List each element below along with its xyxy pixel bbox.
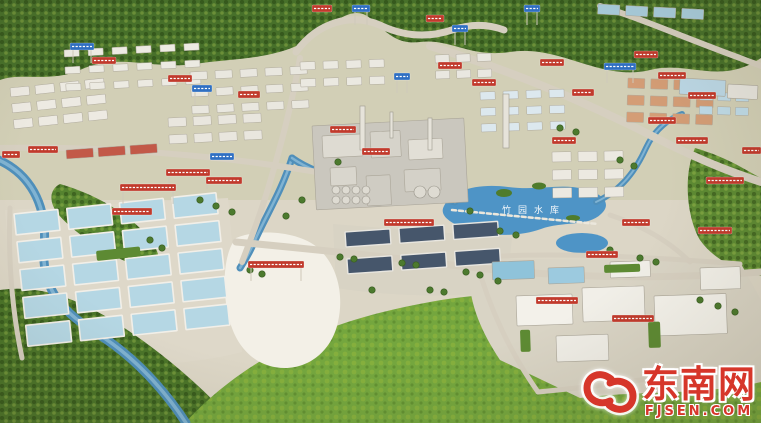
building: [181, 276, 227, 301]
tree: [197, 197, 203, 203]
building: [23, 293, 69, 318]
red-banner-sign: [622, 219, 650, 226]
building: [265, 67, 282, 76]
building: [168, 117, 186, 127]
red-banner-sign: [384, 219, 434, 226]
building: [681, 8, 703, 19]
chimney: [390, 112, 393, 138]
terrain-island: [496, 189, 512, 197]
building: [481, 107, 496, 116]
building: [370, 76, 385, 85]
tree: [427, 287, 433, 293]
building: [128, 282, 174, 307]
building: [628, 78, 645, 89]
building: [98, 146, 126, 157]
building: [130, 144, 158, 155]
building: [369, 59, 384, 68]
building: [604, 169, 623, 179]
red-banner-sign: [168, 75, 192, 82]
building: [131, 310, 177, 335]
reservoir-label: 竹园水库: [502, 204, 566, 216]
chimney: [428, 118, 432, 150]
building: [324, 78, 339, 87]
building: [215, 70, 232, 79]
building: [218, 114, 236, 124]
red-banner-sign: [330, 126, 356, 133]
building: [75, 287, 121, 312]
storage-tank: [428, 186, 440, 198]
building: [65, 66, 80, 74]
tree: [213, 203, 219, 209]
building: [435, 55, 449, 63]
tree: [399, 260, 405, 266]
red-banner-sign: [688, 92, 716, 99]
building: [550, 105, 565, 114]
building: [346, 60, 361, 69]
building: [216, 87, 233, 96]
building: [527, 122, 542, 131]
storage-tank: [342, 186, 350, 194]
red-banner-sign: [92, 57, 116, 64]
red-banner-sign: [698, 227, 732, 234]
building: [38, 115, 58, 126]
chimney: [503, 94, 509, 148]
storage-tank: [414, 186, 426, 198]
hedge: [520, 330, 531, 352]
tree: [413, 262, 419, 268]
tree: [495, 278, 501, 284]
building: [654, 293, 727, 335]
building: [717, 107, 730, 115]
building: [399, 225, 445, 243]
building: [66, 148, 94, 159]
building: [625, 5, 647, 16]
building: [477, 53, 491, 61]
building: [113, 64, 128, 72]
building: [67, 204, 113, 229]
building: [408, 138, 443, 160]
tree: [337, 254, 343, 260]
building: [401, 252, 447, 270]
building: [457, 70, 471, 78]
storage-tank: [362, 186, 370, 194]
red-banner-sign: [438, 62, 462, 69]
building: [136, 45, 151, 53]
red-banner-sign: [112, 208, 152, 215]
tree: [299, 197, 305, 203]
fjsen-logo-icon: [580, 364, 640, 420]
red-banner-sign: [536, 297, 578, 304]
building: [114, 81, 129, 89]
red-banner-sign: [2, 151, 20, 158]
red-banner-sign: [658, 72, 686, 79]
tree: [463, 269, 469, 275]
building: [695, 114, 712, 125]
building: [556, 334, 609, 362]
building: [61, 97, 81, 108]
tree: [229, 209, 235, 215]
tree: [283, 213, 289, 219]
terrain-small-pond: [556, 233, 608, 253]
red-banner-sign: [648, 117, 676, 124]
red-banner-sign: [28, 146, 58, 153]
building: [73, 260, 119, 285]
building: [700, 267, 741, 290]
building: [217, 104, 234, 113]
building: [699, 106, 712, 114]
building: [160, 44, 175, 52]
building: [37, 99, 57, 110]
building: [627, 95, 644, 106]
red-banner-sign: [206, 177, 242, 184]
watermark-text: 东南网 FJSEN.COM: [642, 366, 756, 419]
building: [605, 187, 624, 197]
building: [125, 254, 171, 279]
building: [345, 229, 391, 247]
storage-tank: [352, 196, 360, 204]
tree: [513, 232, 519, 238]
building: [347, 77, 362, 86]
building: [219, 131, 237, 141]
building: [243, 113, 261, 123]
tree: [715, 303, 721, 309]
tree: [653, 259, 659, 265]
tree: [573, 129, 579, 135]
blue-road-sign: [210, 153, 234, 160]
building: [453, 221, 499, 239]
tree: [147, 237, 153, 243]
tree: [557, 125, 563, 131]
building: [14, 209, 60, 234]
tree: [351, 256, 357, 262]
building-cluster: [552, 151, 624, 198]
building: [578, 151, 597, 161]
red-banner-sign: [540, 59, 564, 66]
building: [63, 113, 83, 124]
red-banner-sign: [586, 251, 618, 258]
building: [194, 133, 212, 143]
building: [548, 267, 585, 284]
building: [10, 86, 30, 97]
tree: [697, 297, 703, 303]
building: [17, 237, 63, 262]
building: [169, 134, 187, 144]
tree: [732, 309, 738, 315]
building: [86, 94, 106, 105]
tree: [369, 287, 375, 293]
building: [172, 193, 218, 218]
tree: [335, 159, 341, 165]
storage-tank: [342, 196, 350, 204]
building: [292, 100, 309, 109]
building: [481, 123, 496, 132]
building: [552, 152, 571, 162]
building: [242, 102, 259, 111]
red-banner-sign: [238, 91, 260, 98]
building: [175, 221, 221, 246]
tree: [467, 208, 473, 214]
building: [112, 47, 127, 55]
storage-tank: [332, 186, 340, 194]
label-layer: 竹园水库: [502, 204, 566, 216]
building: [478, 69, 492, 77]
building: [267, 101, 284, 110]
building: [300, 61, 315, 70]
red-banner-sign: [552, 137, 576, 144]
watermark-site-name: 东南网: [642, 366, 756, 403]
building: [527, 106, 542, 115]
red-banner-sign: [362, 148, 390, 155]
red-banner-sign: [676, 137, 708, 144]
storage-tank: [332, 196, 340, 204]
tree: [497, 228, 503, 234]
building: [178, 248, 224, 273]
red-banner-sign: [634, 51, 658, 58]
red-banner-sign: [706, 177, 744, 184]
building: [626, 112, 643, 123]
building: [64, 49, 79, 57]
building: [323, 61, 338, 70]
building: [492, 261, 535, 280]
building: [735, 107, 748, 115]
building: [66, 83, 81, 91]
building: [138, 79, 153, 87]
building: [137, 62, 152, 70]
chimney: [360, 106, 365, 150]
tree: [259, 271, 265, 277]
building: [552, 170, 571, 180]
building: [653, 7, 675, 18]
watermark: 东南网 FJSEN.COM: [580, 364, 756, 420]
red-banner-sign: [312, 5, 332, 12]
building: [35, 83, 55, 94]
building: [480, 91, 495, 100]
terrain-island: [532, 183, 546, 190]
building: [526, 90, 541, 99]
building: [89, 65, 104, 73]
building: [240, 68, 257, 77]
building: [12, 102, 32, 113]
tree: [477, 272, 483, 278]
hedge: [604, 264, 640, 273]
building: [727, 84, 758, 100]
building: [26, 321, 72, 346]
building: [90, 82, 105, 90]
building: [244, 130, 262, 140]
tree: [637, 255, 643, 261]
building: [597, 4, 619, 15]
red-banner-sign: [742, 147, 761, 154]
red-banner-sign: [426, 15, 444, 22]
red-banner-sign: [472, 79, 496, 86]
building: [266, 84, 283, 93]
hedge: [648, 322, 661, 348]
building: [301, 78, 316, 87]
tree: [631, 163, 637, 169]
building: [579, 187, 598, 197]
building: [161, 61, 176, 69]
building: [456, 54, 470, 62]
building: [578, 169, 597, 179]
building: [650, 96, 667, 107]
building: [78, 315, 124, 340]
building: [651, 79, 668, 90]
building: [549, 89, 564, 98]
storage-tank: [352, 186, 360, 194]
building: [190, 71, 207, 80]
building: [330, 167, 357, 186]
model-scene: 竹园水库: [0, 0, 761, 423]
building: [322, 134, 363, 158]
building: [193, 116, 211, 126]
building: [88, 110, 108, 121]
building: [20, 265, 66, 290]
building: [184, 43, 199, 51]
building: [184, 304, 230, 329]
building: [553, 188, 572, 198]
tree: [617, 157, 623, 163]
building: [185, 60, 200, 68]
red-banner-sign: [612, 315, 654, 322]
scale-model-photo: 竹园水库 东南网 FJSEN.COM: [0, 0, 761, 423]
tree: [441, 289, 447, 295]
building: [192, 105, 209, 114]
red-banner-sign: [572, 89, 594, 96]
storage-tank: [362, 196, 370, 204]
building: [436, 71, 450, 79]
tree: [159, 245, 165, 251]
building: [13, 118, 33, 129]
watermark-site-url: FJSEN.COM: [642, 404, 756, 419]
